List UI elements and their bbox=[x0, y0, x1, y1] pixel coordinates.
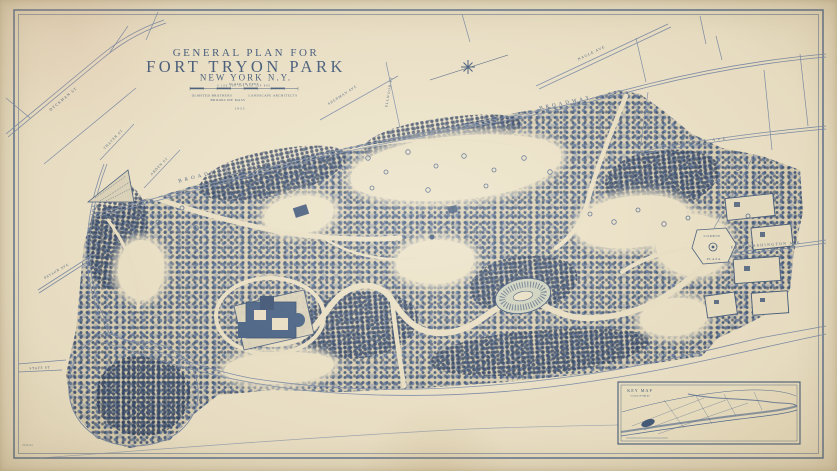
key-map-subtitle: SCALE OF MILES bbox=[631, 395, 651, 398]
credit-city: BROOKLINE MASS bbox=[211, 98, 246, 102]
label-broadway-west: BROADWAY bbox=[178, 167, 232, 185]
label-arden-st: ARDEN ST bbox=[150, 156, 169, 176]
label-riverside-west: RIVERSIDE bbox=[88, 203, 97, 241]
label-riverside-south: RIVERSIDE bbox=[506, 374, 553, 381]
playground bbox=[88, 170, 134, 202]
scale-numbers: 0 100 200 300 400 500 600 bbox=[217, 85, 271, 88]
label-nagle-ave: NAGLE AVE bbox=[577, 45, 606, 62]
scale-bar bbox=[190, 87, 298, 91]
credit-firm: OLMSTED BROTHERS bbox=[192, 94, 233, 98]
north-arrow-icon bbox=[430, 55, 508, 80]
key-map-inset: KEY MAP SCALE OF MILES bbox=[618, 382, 800, 444]
credit-role: LANDSCAPE ARCHITECTS bbox=[248, 94, 297, 98]
title-block: GENERAL PLAN FOR FORT TRYON PARK NEW YOR… bbox=[146, 47, 346, 111]
map-sheet: GENERAL PLAN FOR FORT TRYON PARK NEW YOR… bbox=[0, 0, 837, 471]
drawing-number: 2239-94 bbox=[22, 443, 33, 447]
label-riverside-drive-south: DRIVE bbox=[658, 346, 685, 357]
label-staff-st: STAFF ST bbox=[29, 365, 50, 370]
oval-garden bbox=[492, 274, 554, 319]
cloisters-building bbox=[234, 290, 314, 350]
label-plaza: PLAZA bbox=[707, 257, 721, 261]
plan-year: 1935 bbox=[235, 107, 246, 111]
label-corbin: CORBIN bbox=[704, 234, 721, 238]
street-labels: BROADWAY BROADWAY DYCKMAN ST THAYER ST A… bbox=[29, 45, 801, 382]
label-thayer-st: THAYER ST bbox=[103, 128, 124, 150]
scattered-trees bbox=[156, 150, 778, 231]
label-payson-ave: PAYSON AVE bbox=[43, 262, 69, 280]
label-sherman-ave: SHERMAN AVE bbox=[327, 84, 358, 106]
key-map-title: KEY MAP bbox=[627, 388, 653, 393]
map-linework: GENERAL PLAN FOR FORT TRYON PARK NEW YOR… bbox=[0, 0, 837, 471]
